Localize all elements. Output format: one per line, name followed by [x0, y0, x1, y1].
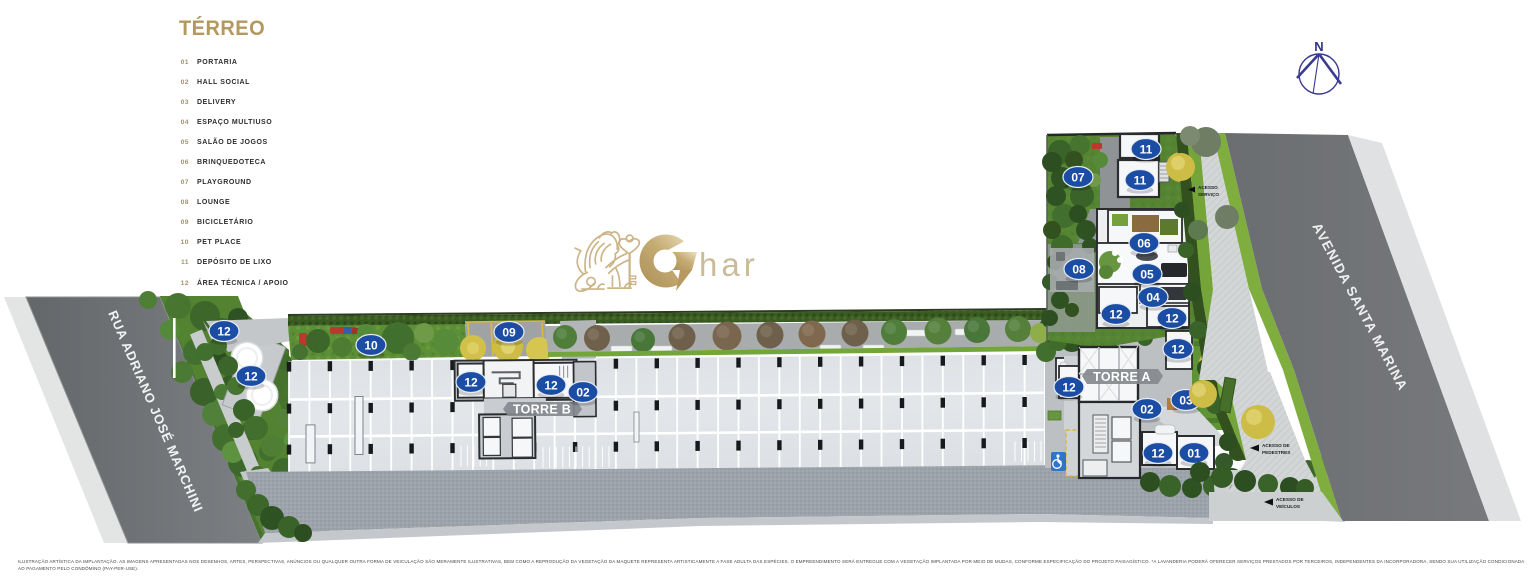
svg-text:12: 12 — [464, 375, 478, 389]
svg-text:07: 07 — [1071, 170, 1085, 184]
svg-text:02: 02 — [576, 385, 590, 399]
svg-text:ACESSO: ACESSO — [1198, 185, 1218, 190]
svg-text:11: 11 — [1134, 173, 1147, 187]
svg-text:12: 12 — [1151, 446, 1165, 460]
svg-text:11: 11 — [1140, 142, 1153, 156]
svg-text:har: har — [699, 246, 759, 283]
svg-text:04: 04 — [1146, 290, 1160, 304]
svg-text:12: 12 — [217, 324, 231, 338]
svg-text:ACESSO DE: ACESSO DE — [1276, 497, 1304, 502]
svg-text:12: 12 — [544, 378, 558, 392]
svg-text:TORRE A: TORRE A — [1093, 370, 1151, 384]
svg-text:TORRE B: TORRE B — [513, 403, 571, 417]
svg-text:09: 09 — [502, 325, 516, 339]
svg-text:05: 05 — [1140, 267, 1154, 281]
svg-text:PEDESTRES: PEDESTRES — [1262, 450, 1290, 455]
svg-text:VEÍCULOS: VEÍCULOS — [1276, 502, 1300, 509]
svg-text:12: 12 — [1171, 342, 1185, 356]
svg-text:SERVIÇO: SERVIÇO — [1198, 192, 1219, 197]
svg-text:12: 12 — [1165, 311, 1179, 325]
svg-text:01: 01 — [1187, 446, 1201, 460]
svg-text:06: 06 — [1137, 236, 1151, 250]
svg-text:08: 08 — [1072, 262, 1086, 276]
svg-text:02: 02 — [1140, 402, 1154, 416]
svg-text:12: 12 — [1062, 380, 1076, 394]
svg-text:N: N — [1314, 39, 1323, 54]
svg-text:12: 12 — [244, 369, 258, 383]
svg-text:12: 12 — [1109, 307, 1123, 321]
svg-text:ACESSO DE: ACESSO DE — [1262, 443, 1290, 448]
svg-text:10: 10 — [364, 338, 378, 352]
